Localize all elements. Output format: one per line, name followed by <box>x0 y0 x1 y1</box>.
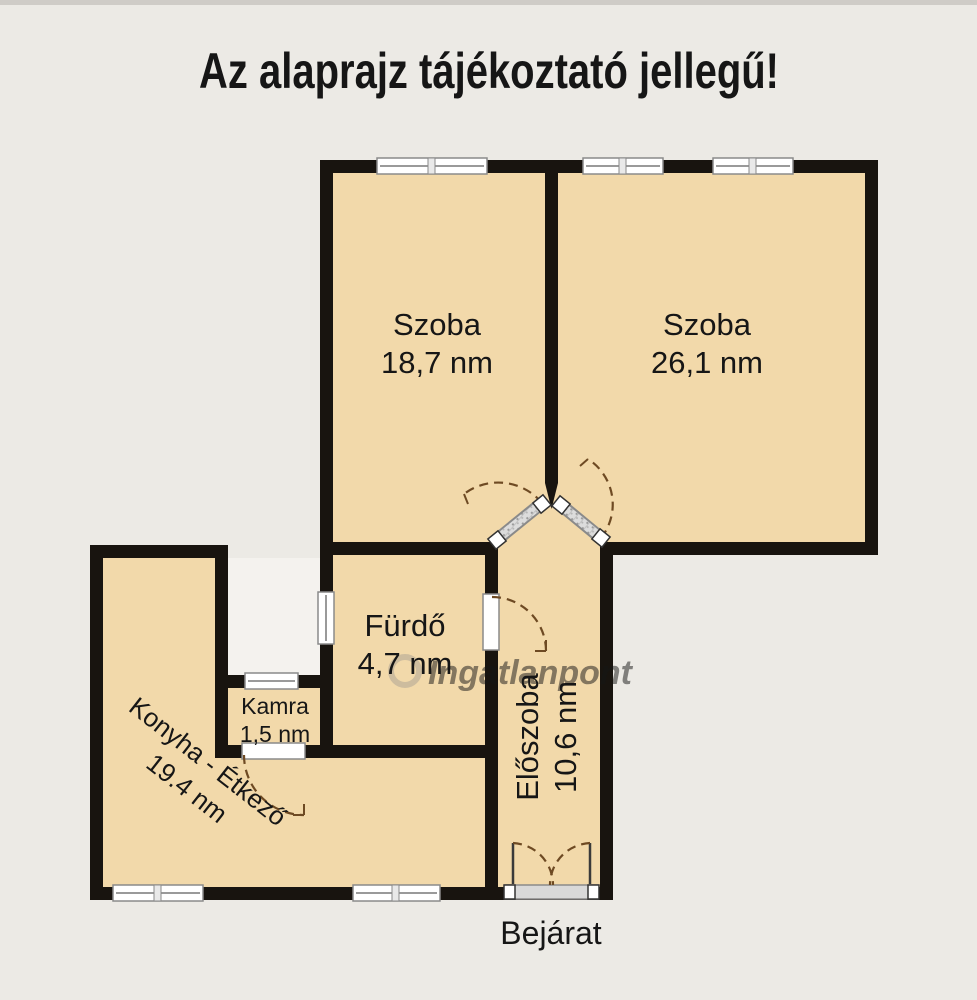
window-symbol <box>583 158 663 174</box>
svg-text:Fürdő: Fürdő <box>365 608 446 643</box>
entrance-label: Bejárat <box>500 915 602 951</box>
window-symbol <box>713 158 793 174</box>
window-symbol <box>113 885 203 901</box>
window-symbol <box>353 885 440 901</box>
window-symbol <box>318 592 334 644</box>
svg-text:Előszoba: Előszoba <box>510 672 545 800</box>
svg-text:Szoba: Szoba <box>663 307 752 342</box>
svg-text:18,7 nm: 18,7 nm <box>381 345 493 380</box>
svg-text:1,5 nm: 1,5 nm <box>240 721 310 747</box>
svg-text:Kamra: Kamra <box>241 693 309 719</box>
floorplan-drawing: Az alaprajz tájékoztató jellegű! <box>0 0 977 1000</box>
floorplan-page: Az alaprajz tájékoztató jellegű! <box>0 0 977 1000</box>
plan-disclaimer-title: Az alaprajz tájékoztató jellegű! <box>199 43 779 99</box>
svg-text:4,7 nm: 4,7 nm <box>358 646 453 681</box>
window-symbol <box>245 673 298 689</box>
svg-text:10,6 nm: 10,6 nm <box>548 681 583 793</box>
window-symbol <box>377 158 487 174</box>
light-well-notch <box>228 558 320 675</box>
svg-text:Szoba: Szoba <box>393 307 482 342</box>
svg-text:26,1 nm: 26,1 nm <box>651 345 763 380</box>
